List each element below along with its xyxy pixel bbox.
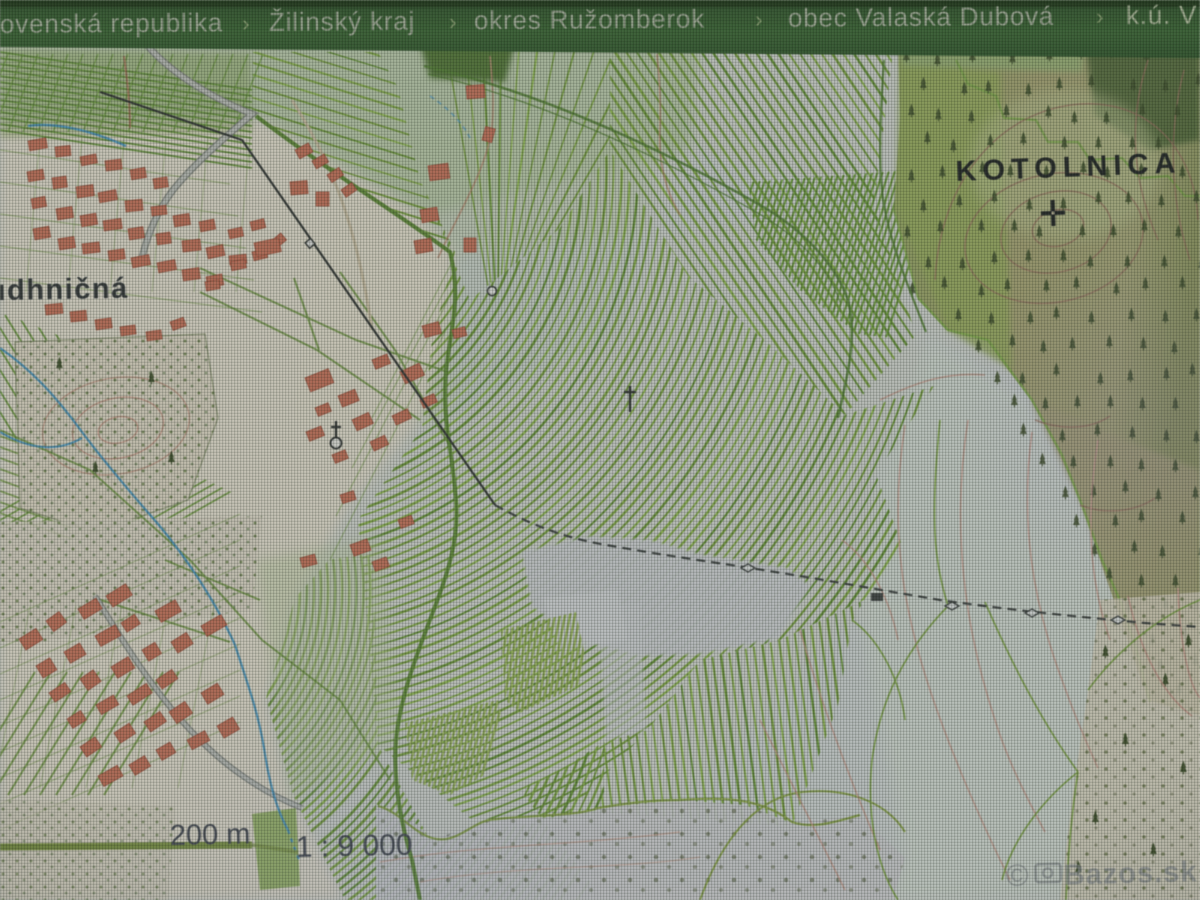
svg-text:ovenská republika: ovenská republika bbox=[0, 7, 223, 39]
svg-text:Žilinský kraj: Žilinský kraj bbox=[269, 6, 415, 37]
svg-text:k.ú. V: k.ú. V bbox=[1126, 0, 1198, 30]
svg-text:okres Ružomberok: okres Ružomberok bbox=[474, 3, 705, 35]
svg-text:›: › bbox=[755, 6, 764, 32]
svg-text:›: › bbox=[242, 10, 251, 36]
svg-text:›: › bbox=[1096, 3, 1105, 29]
svg-text:›: › bbox=[449, 8, 458, 34]
svg-text:obec Valaská Dubová: obec Valaská Dubová bbox=[788, 1, 1054, 33]
